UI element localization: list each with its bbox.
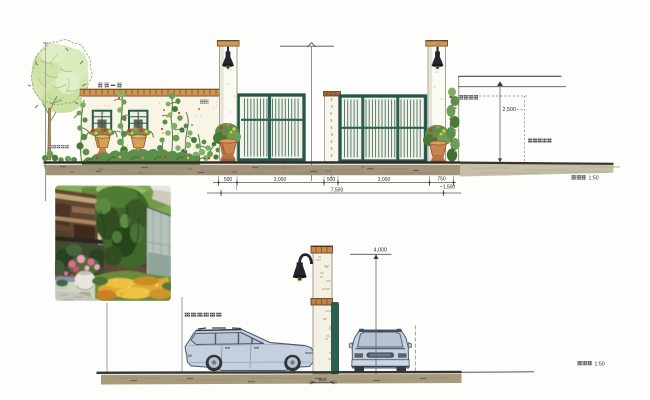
svg-text:~1,500: ~1,500 — [440, 185, 456, 191]
svg-text:1:50: 1:50 — [595, 362, 605, 368]
svg-text:800: 800 — [318, 377, 326, 383]
svg-text:3,000: 3,000 — [378, 177, 391, 183]
svg-text:500: 500 — [327, 177, 336, 183]
svg-text:7,500: 7,500 — [331, 187, 344, 193]
svg-text:1:50: 1:50 — [589, 176, 599, 182]
svg-text:4,000: 4,000 — [374, 248, 388, 254]
svg-text:750: 750 — [437, 176, 446, 182]
svg-text:2,500: 2,500 — [503, 107, 517, 113]
svg-text:3,000: 3,000 — [274, 177, 287, 183]
svg-text:500: 500 — [224, 177, 233, 183]
